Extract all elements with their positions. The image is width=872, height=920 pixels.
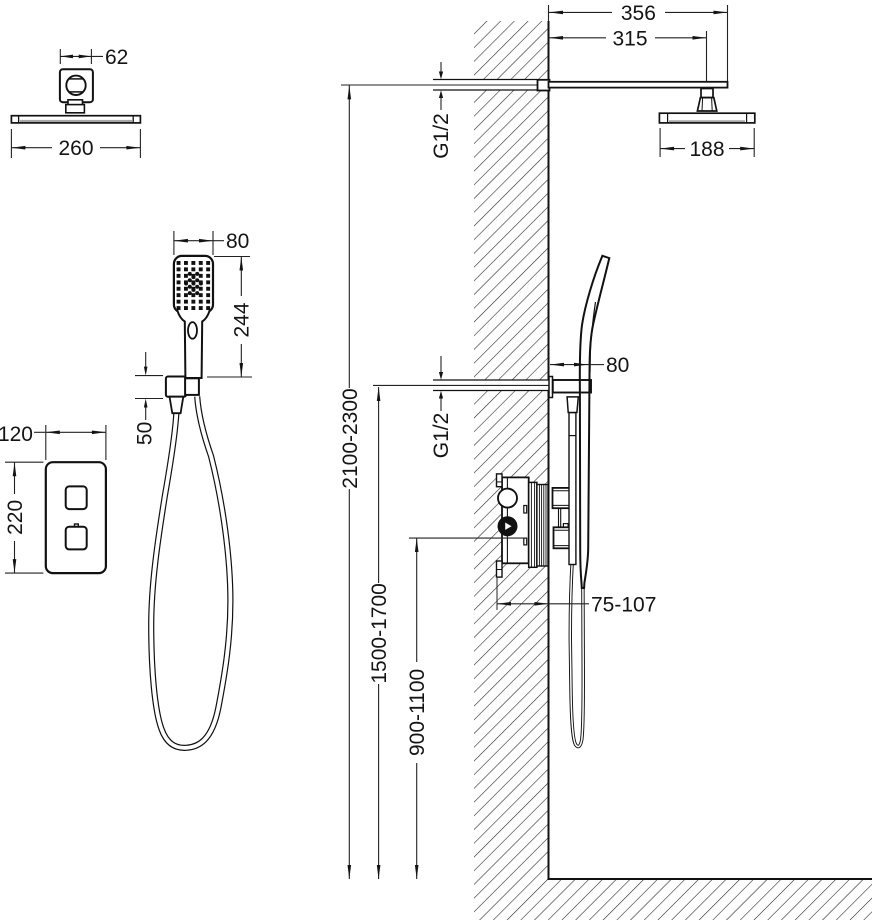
svg-text:120: 120 bbox=[0, 423, 33, 446]
svg-text:80: 80 bbox=[606, 354, 629, 377]
svg-text:50: 50 bbox=[133, 422, 156, 445]
svg-text:188: 188 bbox=[689, 138, 724, 161]
svg-text:1500-1700: 1500-1700 bbox=[368, 583, 391, 683]
svg-text:2100-2300: 2100-2300 bbox=[339, 388, 362, 488]
svg-text:315: 315 bbox=[612, 27, 647, 50]
svg-text:220: 220 bbox=[4, 500, 27, 535]
svg-text:900-1100: 900-1100 bbox=[406, 669, 429, 756]
svg-text:62: 62 bbox=[105, 46, 128, 69]
svg-text:80: 80 bbox=[226, 230, 249, 253]
svg-text:260: 260 bbox=[58, 137, 93, 160]
svg-text:244: 244 bbox=[231, 302, 254, 337]
svg-text:356: 356 bbox=[621, 2, 656, 25]
svg-text:G1/2: G1/2 bbox=[430, 413, 453, 459]
svg-text:G1/2: G1/2 bbox=[430, 113, 453, 159]
svg-text:75-107: 75-107 bbox=[591, 593, 656, 616]
